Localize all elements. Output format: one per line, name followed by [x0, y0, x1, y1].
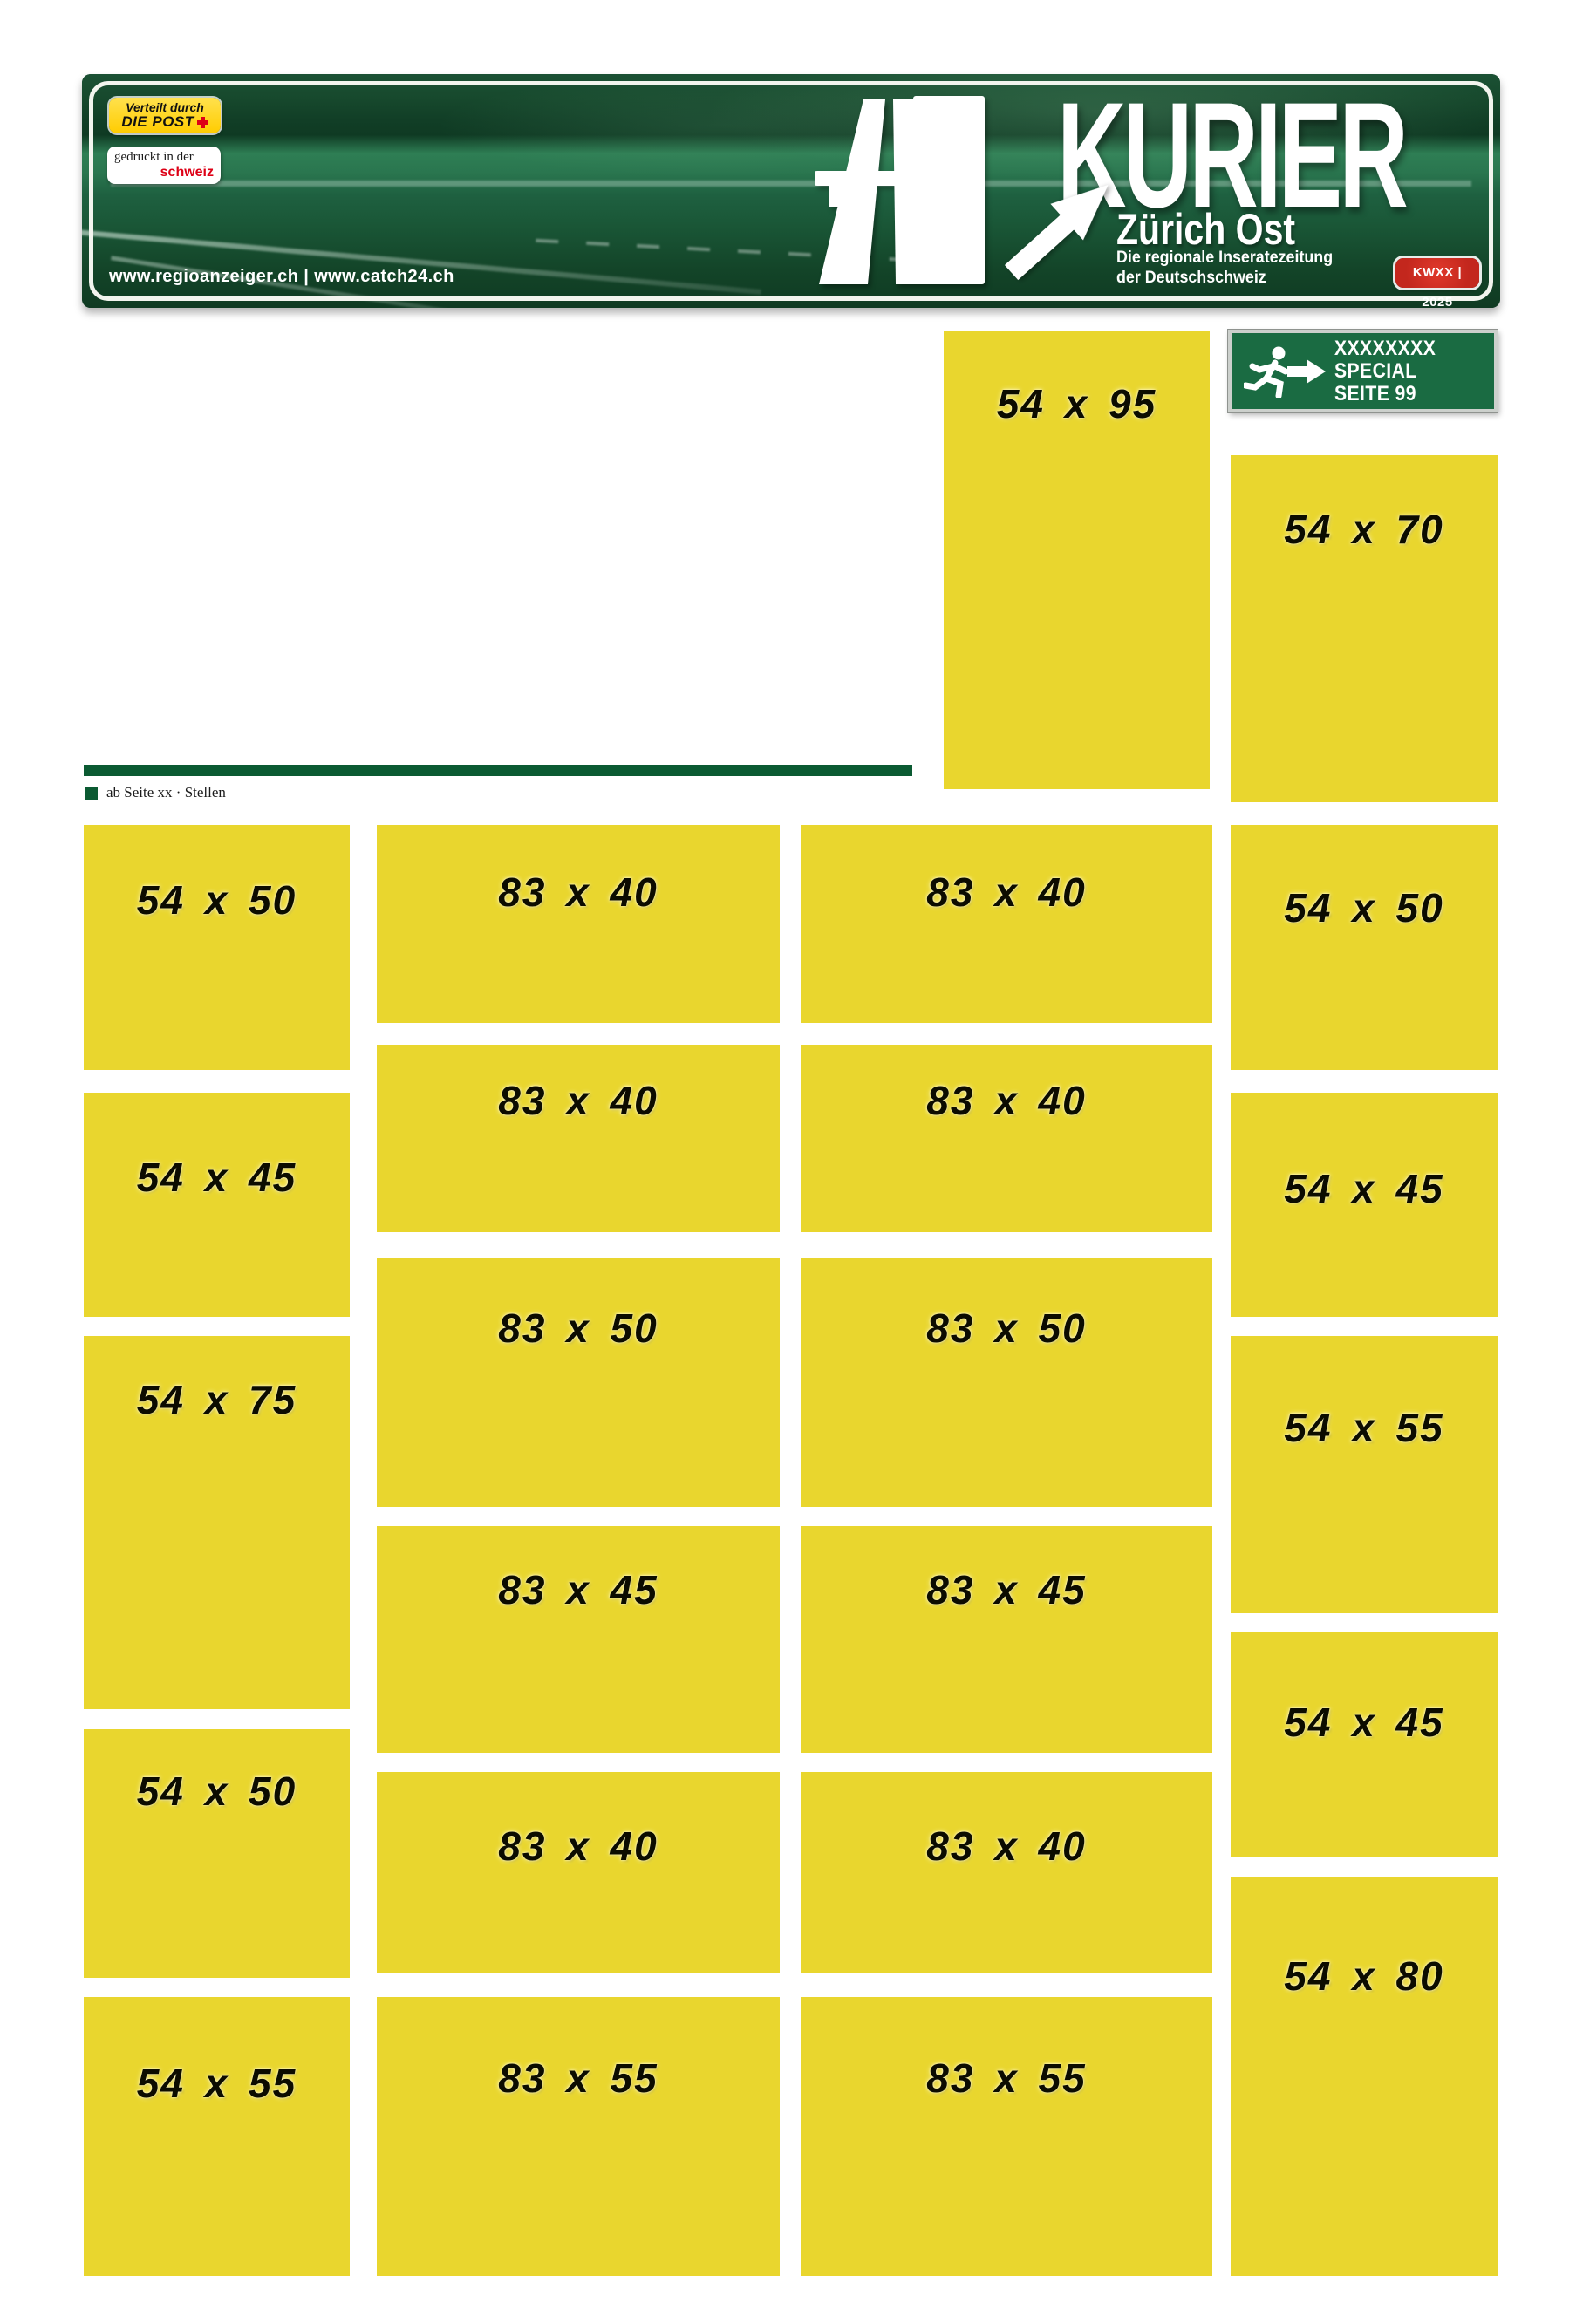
subtitle-line1: Die regionale Inseratezeitung: [1116, 248, 1333, 268]
ad-slot: 54 x 95: [944, 331, 1210, 789]
section-label: ab Seite xx · Stellen: [85, 784, 226, 801]
masthead-subtitle: Die regionale Inseratezeitung der Deutsc…: [1116, 248, 1333, 288]
ad-slot: 83 x 40: [377, 1772, 780, 1973]
ad-size-label: 54 x 95: [944, 382, 1210, 426]
ad-size-label: 83 x 40: [801, 870, 1212, 914]
ad-slot: 83 x 45: [801, 1526, 1212, 1753]
ad-size-label: 54 x 50: [84, 1769, 350, 1813]
ad-size-label: 54 x 70: [1231, 508, 1498, 551]
special-sign-line1: XXXXXXXX: [1334, 337, 1436, 360]
ad-slot: 83 x 40: [377, 825, 780, 1023]
ad-slot: 54 x 50: [84, 825, 350, 1070]
masthead-banner: Verteilt durch DIE POST gedruckt in der …: [82, 74, 1500, 308]
ad-size-label: 83 x 40: [377, 1079, 780, 1122]
ad-size-label: 83 x 55: [377, 2056, 780, 2100]
post-badge-line1: Verteilt durch: [109, 101, 221, 114]
subtitle-line2: der Deutschschweiz: [1116, 268, 1333, 288]
page: Verteilt durch DIE POST gedruckt in der …: [0, 0, 1583, 2324]
ad-size-label: 54 x 75: [84, 1378, 350, 1421]
special-sign-line3: SEITE 99: [1334, 383, 1436, 406]
ad-size-label: 83 x 40: [801, 1824, 1212, 1868]
region-name: Zürich Ost: [1116, 207, 1295, 252]
print-badge-line2: schweiz: [114, 165, 214, 180]
print-badge-line1: gedruckt in der: [114, 150, 214, 165]
ad-slot: 54 x 45: [1231, 1632, 1498, 1857]
ad-slot: 83 x 50: [377, 1258, 780, 1507]
special-section-sign: XXXXXXXX SPECIAL SEITE 99: [1228, 330, 1498, 412]
ad-slot: 83 x 55: [801, 1997, 1212, 2276]
ad-size-label: 54 x 50: [1231, 886, 1498, 930]
ad-slot: 83 x 45: [377, 1526, 780, 1753]
ad-size-label: 83 x 40: [377, 870, 780, 914]
printed-in-switzerland-badge: gedruckt in der schweiz: [107, 147, 221, 184]
website-urls: www.regioanzeiger.ch | www.catch24.ch: [109, 267, 454, 287]
ad-slot: 54 x 70: [1231, 455, 1498, 802]
ad-size-label: 83 x 50: [801, 1306, 1212, 1350]
ad-slot: 54 x 45: [84, 1093, 350, 1317]
ad-slot: 54 x 75: [84, 1336, 350, 1709]
section-label-text: ab Seite xx · Stellen: [106, 784, 226, 801]
ad-size-label: 54 x 45: [84, 1155, 350, 1199]
ad-slot: 83 x 40: [801, 1045, 1212, 1232]
issue-week-badge: KWXX | 2025: [1395, 258, 1479, 288]
ad-slot: 83 x 40: [801, 1772, 1212, 1973]
ad-slot: 83 x 50: [801, 1258, 1212, 1507]
ad-slot: 54 x 50: [1231, 825, 1498, 1070]
ad-slot: 83 x 40: [801, 825, 1212, 1023]
ad-size-label: 54 x 50: [84, 878, 350, 922]
ad-slot: 54 x 55: [84, 1997, 350, 2276]
ad-size-label: 83 x 45: [801, 1568, 1212, 1612]
ad-slot: 54 x 80: [1231, 1877, 1498, 2276]
ad-size-label: 83 x 55: [801, 2056, 1212, 2100]
ad-slot: 54 x 45: [1231, 1093, 1498, 1317]
ad-size-label: 83 x 40: [377, 1824, 780, 1868]
ad-slot: 83 x 40: [377, 1045, 780, 1232]
section-bullet-icon: [85, 787, 98, 800]
ad-size-label: 54 x 45: [1231, 1700, 1498, 1744]
special-sign-line2: SPECIAL: [1334, 360, 1436, 383]
die-post-badge: Verteilt durch DIE POST: [109, 98, 221, 133]
ad-size-label: 83 x 40: [801, 1079, 1212, 1122]
running-man-icon: [1244, 345, 1293, 398]
sign-arrow-icon: [1287, 352, 1326, 391]
ad-size-label: 54 x 55: [84, 2062, 350, 2105]
ad-slot: 54 x 50: [84, 1729, 350, 1978]
ad-size-label: 83 x 50: [377, 1306, 780, 1350]
autobahn-bridge-icon: [815, 94, 988, 286]
ad-size-label: 83 x 45: [377, 1568, 780, 1612]
ad-slot: 83 x 55: [377, 1997, 780, 2276]
swiss-post-cross-icon: [197, 117, 208, 128]
section-divider-bar: [84, 765, 912, 776]
post-badge-line2: DIE POST: [109, 114, 221, 130]
ad-slot: 54 x 55: [1231, 1336, 1498, 1613]
ad-size-label: 54 x 80: [1231, 1954, 1498, 1998]
ad-size-label: 54 x 45: [1231, 1167, 1498, 1210]
special-sign-text: XXXXXXXX SPECIAL SEITE 99: [1334, 337, 1436, 406]
ad-size-label: 54 x 55: [1231, 1406, 1498, 1449]
